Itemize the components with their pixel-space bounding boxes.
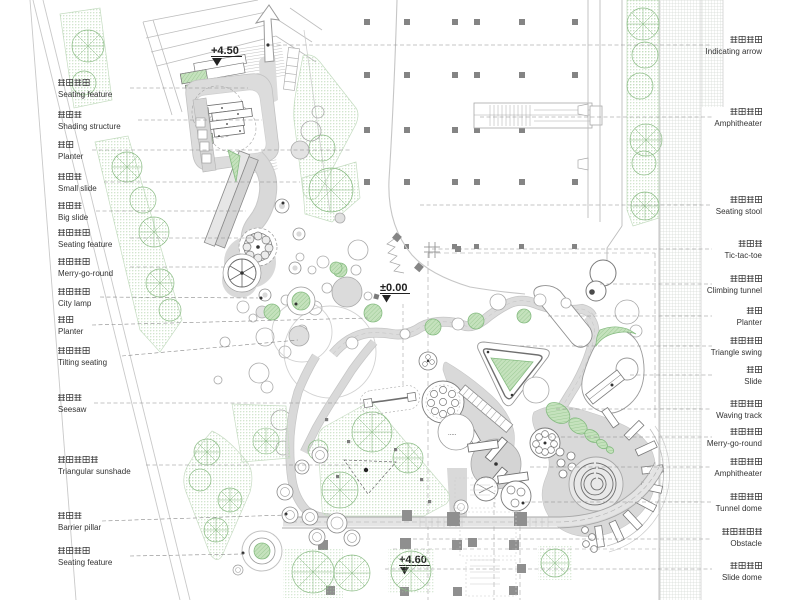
svg-text:Indicating arrow: Indicating arrow [706,47,763,56]
svg-text:Seating stool: Seating stool [716,207,762,216]
svg-text:Seating feature: Seating feature [58,90,113,99]
svg-text:Planter: Planter [737,318,763,327]
svg-text:Planter: Planter [58,152,84,161]
svg-text:Barrier pillar: Barrier pillar [58,523,101,532]
svg-text:Merry-go-round: Merry-go-round [58,269,113,278]
svg-text:Slide: Slide [744,377,762,386]
svg-text:Obstacle: Obstacle [730,539,762,548]
svg-text:Seating feature: Seating feature [58,558,113,567]
svg-text:Tilting seating: Tilting seating [58,358,107,367]
svg-text:Amphitheater: Amphitheater [714,469,762,478]
svg-text:Shading structure: Shading structure [58,122,121,131]
svg-text:Amphitheater: Amphitheater [714,119,762,128]
svg-text:Tic-tac-toe: Tic-tac-toe [725,251,763,260]
svg-text:Climbing tunnel: Climbing tunnel [707,286,762,295]
svg-text:Slide dome: Slide dome [722,573,763,582]
svg-text:Small slide: Small slide [58,184,97,193]
svg-text:City lamp: City lamp [58,299,92,308]
svg-text:Triangle swing: Triangle swing [711,348,762,357]
svg-text:±0.00: ±0.00 [380,282,407,294]
svg-text:Seating feature: Seating feature [58,240,113,249]
svg-text:+4.50: +4.50 [211,45,239,57]
svg-text:Waving track: Waving track [716,411,763,420]
svg-text:.....: ..... [448,431,457,437]
svg-text:Merry-go-round: Merry-go-round [707,439,762,448]
svg-text:Triangular sunshade: Triangular sunshade [58,467,131,476]
svg-text:Tunnel dome: Tunnel dome [716,504,763,513]
svg-text:Seesaw: Seesaw [58,405,87,414]
svg-text:Big slide: Big slide [58,213,89,222]
svg-text:Planter: Planter [58,327,84,336]
